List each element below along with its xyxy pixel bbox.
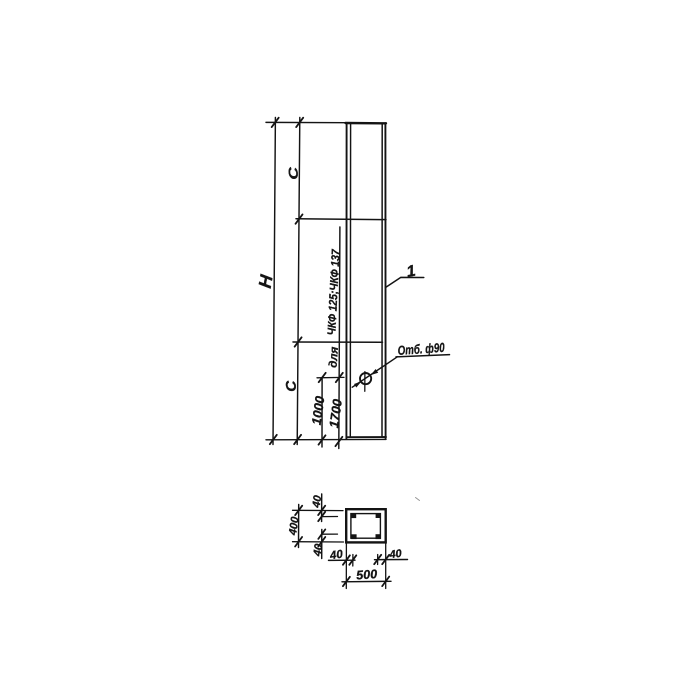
svg-text:40: 40 [311,542,325,558]
svg-text:500: 500 [356,567,378,582]
svg-text:C: C [286,166,301,180]
svg-text:40: 40 [388,548,404,562]
svg-text:для: для [328,346,341,368]
svg-text:40: 40 [328,549,344,563]
svg-text:40: 40 [310,494,324,510]
svg-text:C: C [284,380,300,392]
